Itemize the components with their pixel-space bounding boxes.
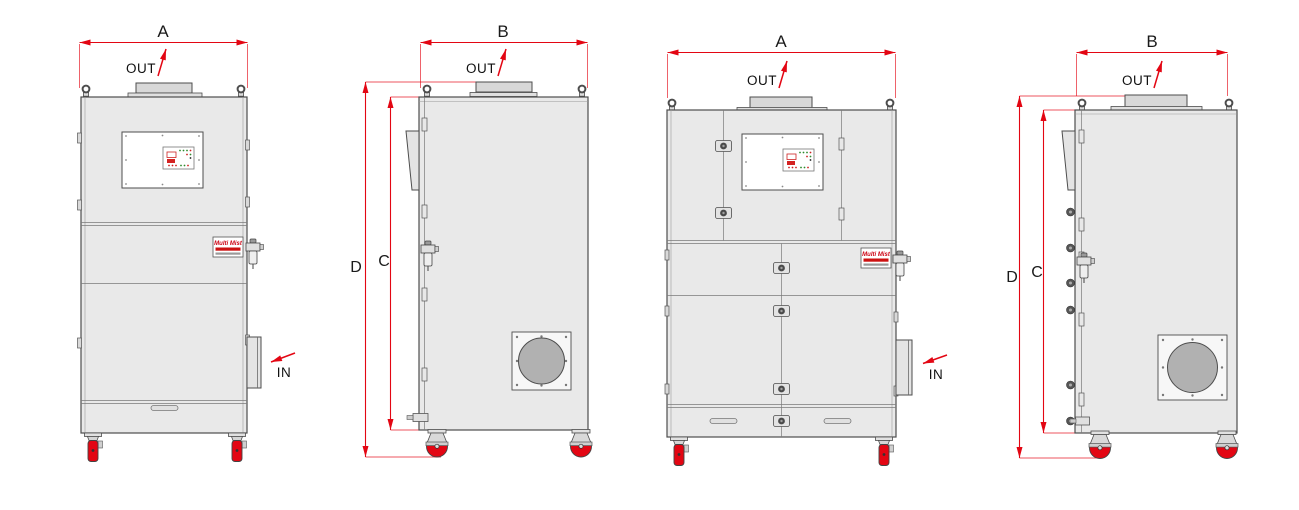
- outlet-annotation: OUT: [126, 49, 166, 76]
- caster-wheel-icon: [1089, 431, 1111, 459]
- latch-knob: [1067, 381, 1075, 389]
- caster-wheel-icon: [85, 433, 103, 462]
- dimension-depth-b: B: [1077, 32, 1228, 96]
- dimension-width-a: A: [668, 32, 896, 98]
- out-arrow-icon: [1154, 61, 1162, 88]
- outlet-annotation: OUT: [1122, 61, 1162, 88]
- brand-label: Multi Mist: [861, 248, 891, 268]
- caster-wheel-icon: [570, 430, 592, 458]
- brand-label-line: [864, 264, 889, 266]
- in-label: IN: [929, 367, 944, 382]
- latch-knob: [716, 208, 732, 219]
- fan-inlet: [512, 332, 571, 390]
- front-view-wide-unit: A OUT Multi Mist: [665, 32, 947, 466]
- dim-label-a: A: [157, 22, 169, 41]
- dim-label-d: D: [350, 259, 362, 276]
- lifting-eyebolt-icon: [887, 100, 894, 111]
- inlet-duct-profile: [1062, 131, 1075, 190]
- brand-name: Multi Mist: [214, 241, 243, 247]
- in-label: IN: [277, 365, 292, 380]
- fan-opening: [1168, 343, 1218, 393]
- out-label: OUT: [1122, 73, 1152, 88]
- caster-wheel-icon: [671, 437, 689, 466]
- air-filter-regulator: [246, 239, 264, 269]
- door-hinge: [665, 250, 669, 260]
- lifting-eyebolt-icon: [579, 86, 586, 97]
- dim-label-b: B: [1146, 32, 1157, 51]
- caster-wheel-icon: [1216, 431, 1238, 459]
- fan-opening: [519, 338, 565, 384]
- door-hinge: [78, 200, 82, 210]
- lifting-eyebolt-icon: [83, 86, 90, 97]
- inlet-annotation: IN: [923, 355, 947, 382]
- door-latch-lever: [407, 416, 413, 420]
- lifting-eyebolt-icon: [669, 100, 676, 111]
- out-label: OUT: [466, 61, 496, 76]
- lifting-eyebolt-icon: [1226, 100, 1233, 111]
- dim-label-b: B: [497, 22, 508, 41]
- inlet-duct-profile: [406, 131, 419, 190]
- latch-knob: [1067, 279, 1075, 287]
- technical-drawing-canvas: A OUT Multi Mist: [0, 0, 1299, 505]
- drawer-handle: [824, 419, 851, 424]
- door-hinge: [78, 338, 82, 348]
- latch-knob: [774, 263, 790, 274]
- door-hinge: [839, 208, 844, 220]
- latch-knob: [1067, 244, 1075, 252]
- out-arrow-icon: [498, 49, 506, 76]
- control-panel-window: [742, 134, 823, 190]
- inlet-annotation: IN: [271, 353, 295, 380]
- out-label: OUT: [747, 73, 777, 88]
- latch-knob: [774, 384, 790, 395]
- door-hinge: [1079, 130, 1084, 143]
- door-latch: [1076, 417, 1090, 425]
- outlet-duct: [750, 97, 812, 108]
- door-hinge: [246, 140, 250, 150]
- door-hinge: [422, 288, 427, 301]
- door-hinge: [78, 133, 82, 143]
- outlet-annotation: OUT: [466, 49, 506, 76]
- drawer-handle: [710, 419, 737, 424]
- door-hinge: [665, 384, 669, 394]
- brand-label-line: [216, 253, 241, 255]
- side-view-wide-unit: B OUT D C: [1006, 32, 1238, 459]
- door-hinge: [422, 118, 427, 131]
- outlet-annotation: OUT: [747, 61, 787, 88]
- caster-wheel-icon: [229, 433, 247, 462]
- door-latch: [413, 414, 428, 422]
- out-arrow-icon: [158, 49, 166, 76]
- latch-knob: [1067, 306, 1075, 314]
- lifting-eyebolt-icon: [424, 86, 431, 97]
- brand-label-line: [216, 248, 241, 251]
- in-arrow-icon: [271, 353, 295, 362]
- dim-label-c: C: [378, 253, 390, 270]
- front-view-compact-unit: A OUT Multi Mist: [78, 22, 296, 462]
- brand-name: Multi Mist: [862, 252, 891, 258]
- lifting-eyebolt-icon: [1079, 100, 1086, 111]
- inlet-duct: [247, 337, 261, 388]
- door-hinge: [1079, 313, 1084, 326]
- latch-knob: [1067, 208, 1075, 216]
- door-latch-lever: [1070, 419, 1076, 423]
- out-arrow-icon: [779, 61, 787, 88]
- door-hinge: [1079, 218, 1084, 231]
- latch-knob: [774, 416, 790, 427]
- dim-label-c: C: [1031, 264, 1043, 281]
- door-hinge: [894, 312, 898, 322]
- caster-wheel-icon: [426, 430, 448, 458]
- door-hinge: [422, 205, 427, 218]
- fan-inlet: [1158, 335, 1227, 400]
- door-hinge: [246, 197, 250, 207]
- door-hinge: [422, 368, 427, 381]
- in-arrow-icon: [923, 355, 947, 364]
- outlet-duct: [136, 83, 192, 93]
- side-view-compact-unit: B OUT D C: [350, 22, 592, 457]
- inlet-duct: [896, 340, 912, 395]
- dim-label-a: A: [775, 32, 787, 51]
- control-panel-window: [122, 132, 203, 188]
- out-label: OUT: [126, 61, 156, 76]
- door-hinge: [839, 138, 844, 150]
- latch-knob: [774, 306, 790, 317]
- dust-collector-dimension-drawing: A OUT Multi Mist: [0, 0, 1299, 505]
- outlet-duct: [1125, 95, 1187, 107]
- dim-label-d: D: [1006, 269, 1018, 286]
- caster-wheel-icon: [876, 437, 894, 466]
- outlet-duct: [476, 82, 532, 92]
- brand-label-line: [864, 259, 889, 262]
- outlet-duct-flange: [470, 93, 537, 97]
- latch-knob: [716, 141, 732, 152]
- door-hinge: [1079, 393, 1084, 406]
- brand-label: Multi Mist: [213, 237, 243, 257]
- drawer-handle: [151, 406, 178, 411]
- door-hinge: [665, 306, 669, 316]
- lifting-eyebolt-icon: [238, 86, 245, 97]
